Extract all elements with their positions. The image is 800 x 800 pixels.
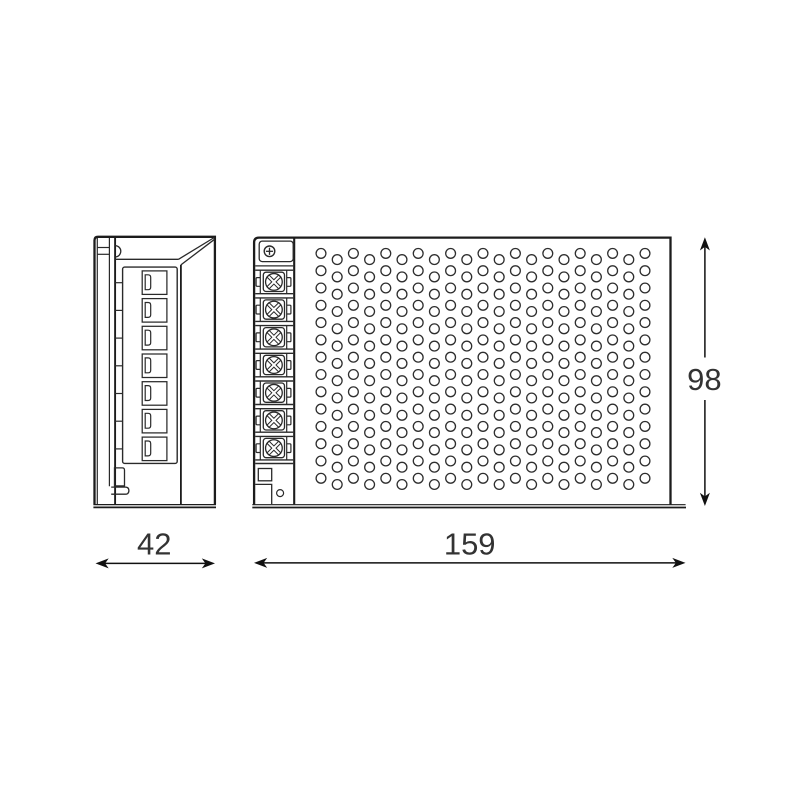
svg-text:98: 98 [687,362,721,397]
svg-text:159: 159 [444,526,496,561]
svg-text:42: 42 [137,527,171,562]
